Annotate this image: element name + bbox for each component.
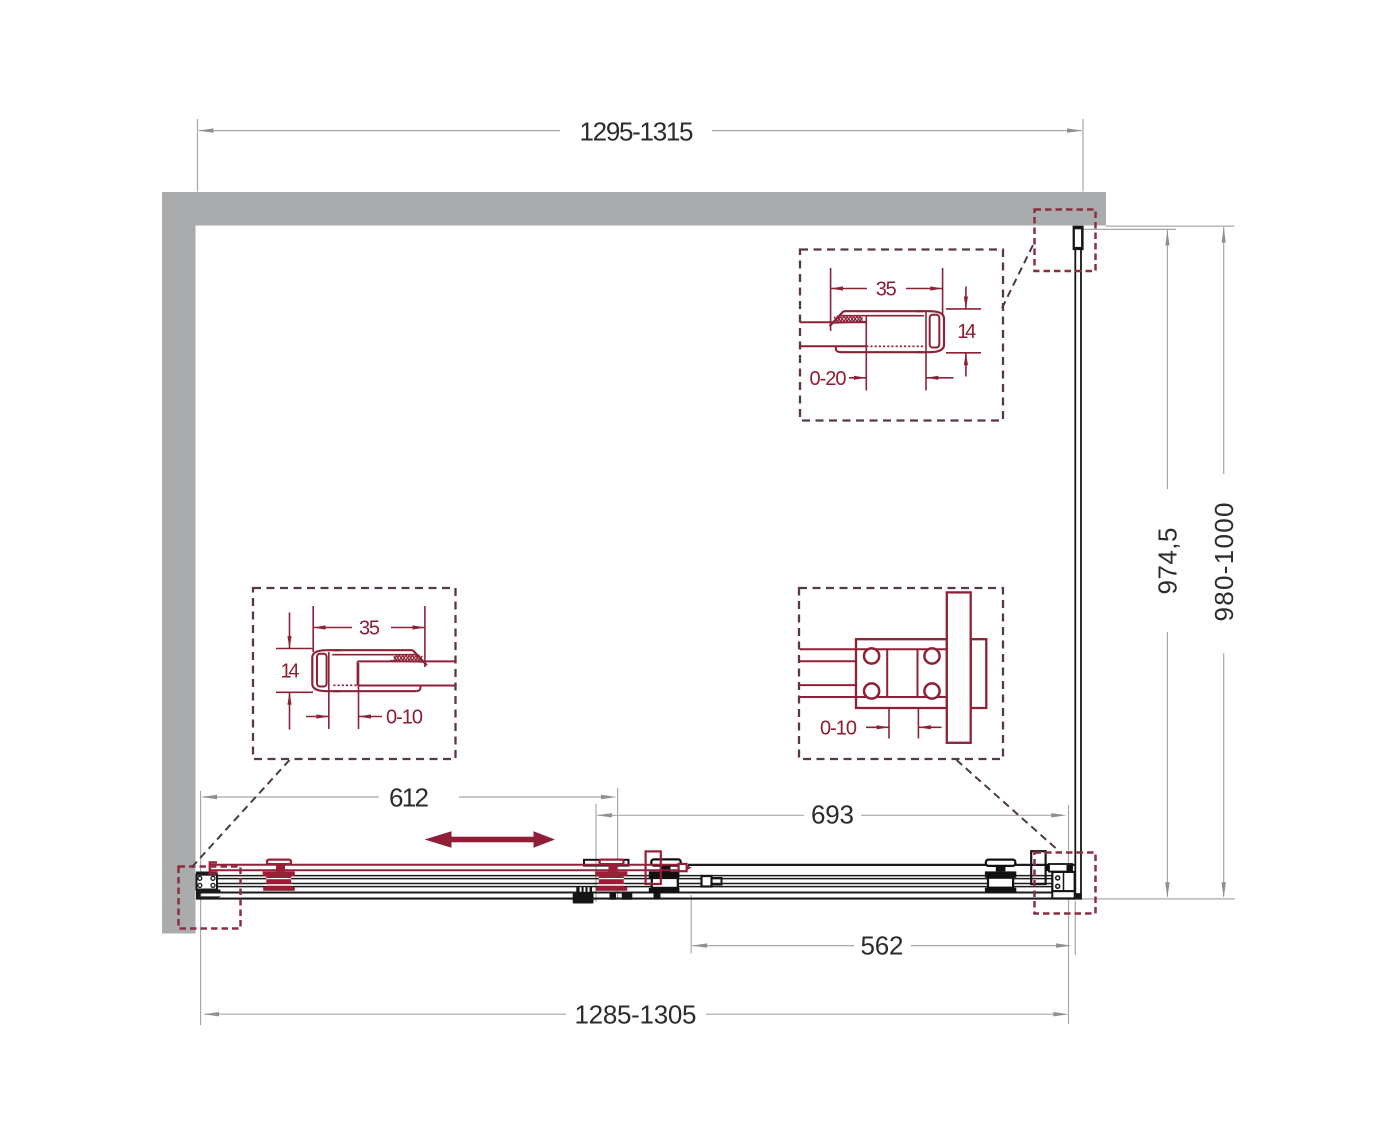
svg-text:1295-1315: 1295-1315 (580, 116, 694, 146)
svg-text:1285-1305: 1285-1305 (575, 1000, 697, 1030)
svg-text:562: 562 (861, 931, 904, 961)
svg-text:14: 14 (957, 321, 976, 343)
svg-text:0-20: 0-20 (810, 368, 847, 390)
svg-text:974,5: 974,5 (1153, 528, 1183, 595)
svg-text:14: 14 (281, 661, 300, 683)
svg-text:693: 693 (811, 799, 854, 829)
svg-text:612: 612 (389, 782, 429, 812)
svg-text:35: 35 (876, 279, 897, 301)
svg-text:0-10: 0-10 (820, 717, 857, 739)
svg-text:980-1000: 980-1000 (1209, 503, 1239, 622)
svg-text:35: 35 (359, 618, 380, 640)
svg-text:0-10: 0-10 (386, 707, 423, 729)
